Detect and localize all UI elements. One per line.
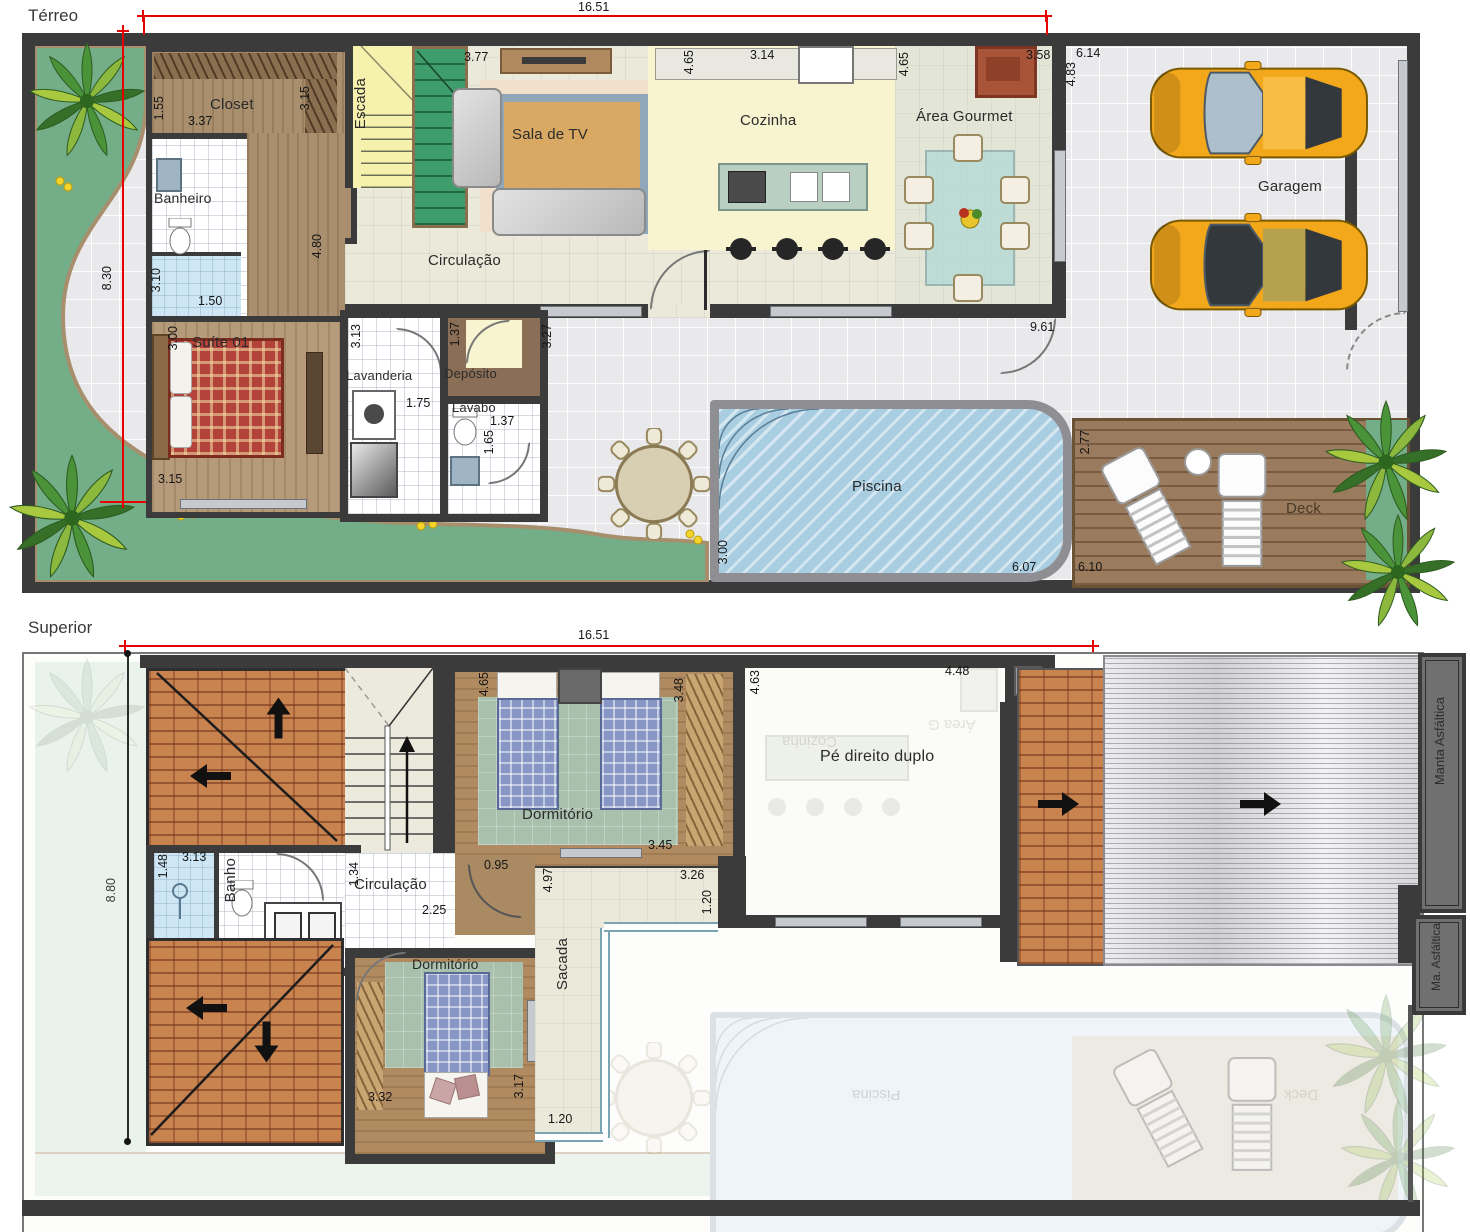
chair — [953, 274, 983, 302]
dim-cross — [137, 10, 149, 22]
dim: 1.37 — [448, 322, 462, 346]
floorplan-canvas: Térreo — [0, 0, 1470, 1232]
window — [1398, 60, 1408, 312]
sofa — [452, 88, 502, 188]
dim: 1.65 — [482, 430, 496, 454]
window — [770, 306, 892, 317]
gourmet-table — [925, 150, 1015, 286]
label-pe-direito: Pé direito duplo — [820, 748, 934, 766]
dim-line — [143, 15, 1048, 17]
ghost-label-piscina: Piscina — [852, 1086, 900, 1103]
label-area-gourmet: Área Gourmet — [916, 108, 1013, 125]
dim-dot — [124, 1138, 131, 1145]
label-lavanderia: Lavanderia — [346, 368, 412, 383]
dim: 4.97 — [541, 868, 555, 892]
dim: 1.48 — [156, 854, 170, 878]
slope-arrow-left — [190, 764, 231, 788]
dim: 3.15 — [298, 86, 312, 110]
ghost-label-deck: Deck — [1284, 1086, 1318, 1103]
bed — [600, 698, 662, 810]
sacada-railing — [604, 922, 718, 932]
tv-icon — [522, 57, 586, 64]
stool — [776, 238, 798, 260]
tree-icon — [6, 452, 138, 584]
dim-cross — [1087, 640, 1099, 652]
dim: 3.48 — [672, 678, 686, 702]
slope-arrow-right — [1038, 792, 1079, 816]
slope-arrow-right — [1240, 792, 1281, 816]
dim: 3.77 — [464, 50, 488, 64]
car-icon — [1148, 212, 1370, 318]
dim: 1.37 — [490, 414, 514, 428]
sink — [822, 172, 850, 202]
window — [560, 848, 642, 858]
label-circulacao2: Circulação — [354, 876, 427, 893]
sacada-railing — [535, 1132, 603, 1142]
dim-total-height: 8.80 — [104, 878, 118, 902]
ghost-stool — [882, 798, 900, 816]
banheiro-sink — [156, 158, 182, 192]
label-escada: Escada — [352, 78, 369, 129]
ghost-tree-icon — [26, 656, 148, 778]
ghost-pool-ripples — [716, 1018, 826, 1128]
dim: 1.75 — [406, 396, 430, 410]
dim: 3.37 — [188, 114, 212, 128]
label-sacada: Sacada — [554, 938, 571, 990]
grill-inner — [986, 57, 1020, 81]
dim: 3.26 — [680, 868, 704, 882]
dim: 4.65 — [682, 50, 696, 74]
dim: 6.10 — [1078, 560, 1102, 574]
pillow — [170, 396, 192, 448]
dim-line — [127, 653, 129, 1141]
label-deposito: Depósito — [444, 366, 497, 381]
dim: 3.17 — [512, 1074, 526, 1098]
dim: 4.48 — [945, 664, 969, 678]
side-table — [1184, 448, 1212, 476]
label-banho: Banho — [222, 858, 239, 902]
dim: 3.00 — [716, 540, 730, 564]
dim: 3.13 — [349, 324, 363, 348]
wall — [718, 856, 746, 928]
sacada-railing — [600, 928, 610, 1138]
label-suite: Suíte 01 — [192, 334, 249, 351]
chair — [904, 222, 934, 250]
car-icon — [1148, 60, 1370, 166]
label-circulacao: Circulação — [428, 252, 501, 269]
label-closet: Closet — [210, 96, 254, 113]
fridge — [798, 46, 854, 84]
window — [900, 917, 982, 927]
bed-pillow — [600, 672, 660, 700]
banheiro-shower — [152, 252, 241, 320]
dim: 2.25 — [422, 903, 446, 917]
roof-tiles — [146, 938, 344, 1146]
slope-arrow-left — [186, 996, 227, 1020]
dim-total-width: 16.51 — [578, 628, 609, 642]
label-sala-tv: Sala de TV — [512, 126, 588, 143]
dim: 1.20 — [700, 890, 714, 914]
dim-total-width: 16.51 — [578, 0, 609, 14]
dim: 3.14 — [750, 48, 774, 62]
laundry-sink — [350, 442, 398, 498]
label-ma-asfaltica: Ma. Asfáltica — [1429, 923, 1443, 991]
roof-tiles-strip — [1017, 668, 1107, 966]
site-wall-right — [1408, 1005, 1413, 1202]
ghost-stool — [806, 798, 824, 816]
dim: 3.13 — [182, 850, 206, 864]
dim-dot — [124, 650, 131, 657]
stairwell — [345, 668, 445, 856]
dim: 2.77 — [1078, 430, 1092, 454]
wardrobe-hatch — [686, 674, 723, 846]
dim: 3.32 — [368, 1090, 392, 1104]
cooktop — [728, 171, 766, 203]
dim: 0.95 — [484, 858, 508, 872]
dim: 9.61 — [1030, 320, 1054, 334]
dim: 1.55 — [152, 96, 166, 120]
pillow — [454, 1074, 480, 1100]
label-banheiro: Banheiro — [154, 190, 212, 206]
fruit-bowl-icon — [955, 204, 985, 234]
dim: 3.00 — [166, 326, 180, 350]
washer-door — [364, 404, 384, 424]
dim-cross — [117, 25, 129, 37]
dim: 4.65 — [477, 672, 491, 696]
terreo-title: Térreo — [28, 6, 78, 26]
dim-line — [122, 30, 124, 502]
stool — [730, 238, 752, 260]
lounger-icon — [1212, 452, 1272, 572]
ghost-round-table — [598, 1042, 710, 1154]
dim-total-height: 8.30 — [100, 266, 114, 290]
dim: 1.34 — [347, 862, 361, 886]
dim: 1.50 — [198, 294, 222, 308]
dim: 3.10 — [149, 268, 163, 292]
manta-asfaltica-bar: Manta Asfáltica — [1418, 653, 1466, 913]
dim-tick — [100, 501, 146, 503]
window — [180, 499, 307, 509]
tree-icon — [1322, 398, 1450, 526]
door-leaf — [704, 250, 707, 310]
suite-hall-floor — [247, 133, 345, 322]
tree-icon — [26, 40, 148, 162]
dim: 3.58 — [1026, 48, 1050, 62]
dim: 4.63 — [748, 670, 762, 694]
lavabo-sink — [450, 456, 480, 486]
dim: 3.45 — [648, 838, 672, 852]
dim: 3.27 — [540, 324, 554, 348]
window — [1054, 150, 1066, 262]
pool-ripples — [719, 409, 839, 529]
label-garagem: Garagem — [1258, 178, 1322, 195]
window — [540, 306, 642, 317]
kitchen-island — [718, 163, 868, 211]
chair — [1000, 222, 1030, 250]
slope-arrow-up — [267, 698, 291, 739]
chair — [953, 134, 983, 162]
window — [775, 917, 867, 927]
ghost-stool — [844, 798, 862, 816]
washing-machine — [352, 390, 396, 440]
bed — [424, 972, 490, 1076]
round-table-icon — [598, 428, 710, 540]
label-piscina: Piscina — [852, 478, 902, 495]
ghost-stool — [768, 798, 786, 816]
roof-tiles — [146, 668, 351, 852]
wall — [1000, 702, 1017, 962]
chair — [904, 176, 934, 204]
site-wall-bottom — [22, 1200, 1420, 1216]
chair — [1000, 176, 1030, 204]
superior-title: Superior — [28, 618, 92, 638]
label-deck: Deck — [1286, 500, 1321, 517]
nightstand — [558, 668, 602, 704]
suite-tv-panel — [306, 352, 323, 454]
tree-icon — [1338, 512, 1458, 632]
shower-icon — [166, 879, 206, 925]
label-dormitorio2: Dormitório — [412, 956, 479, 972]
label-manta: Manta Asfáltica — [1432, 697, 1447, 785]
label-cozinha: Cozinha — [740, 112, 796, 129]
ghost-lounger-icon — [1222, 1056, 1282, 1176]
ghost-label-area-gourmet: Área G — [928, 716, 976, 733]
label-dormitorio1: Dormitório — [522, 806, 593, 823]
label-lavabo: Lavabo — [452, 400, 496, 415]
dim: 6.07 — [1012, 560, 1036, 574]
tv-cabinet — [500, 48, 612, 74]
toilet-icon — [166, 218, 194, 256]
slope-arrow-down — [255, 1022, 279, 1063]
dim: 4.65 — [897, 52, 911, 76]
dim: 3.15 — [158, 472, 182, 486]
stool — [822, 238, 844, 260]
dim-cross — [1040, 10, 1052, 22]
dim: 4.83 — [1064, 62, 1078, 86]
bed — [497, 698, 559, 810]
bed-pillow — [497, 672, 557, 700]
dim: 6.14 — [1076, 46, 1100, 60]
dim-line — [125, 645, 1093, 647]
ma-asfaltica-bar: Ma. Asfáltica — [1412, 915, 1466, 1015]
dim: 4.80 — [310, 234, 324, 258]
stool — [864, 238, 886, 260]
sofa — [492, 188, 646, 236]
dim: 1.20 — [548, 1112, 572, 1126]
sink — [790, 172, 818, 202]
closet-wardrobe-hatch — [154, 53, 337, 79]
